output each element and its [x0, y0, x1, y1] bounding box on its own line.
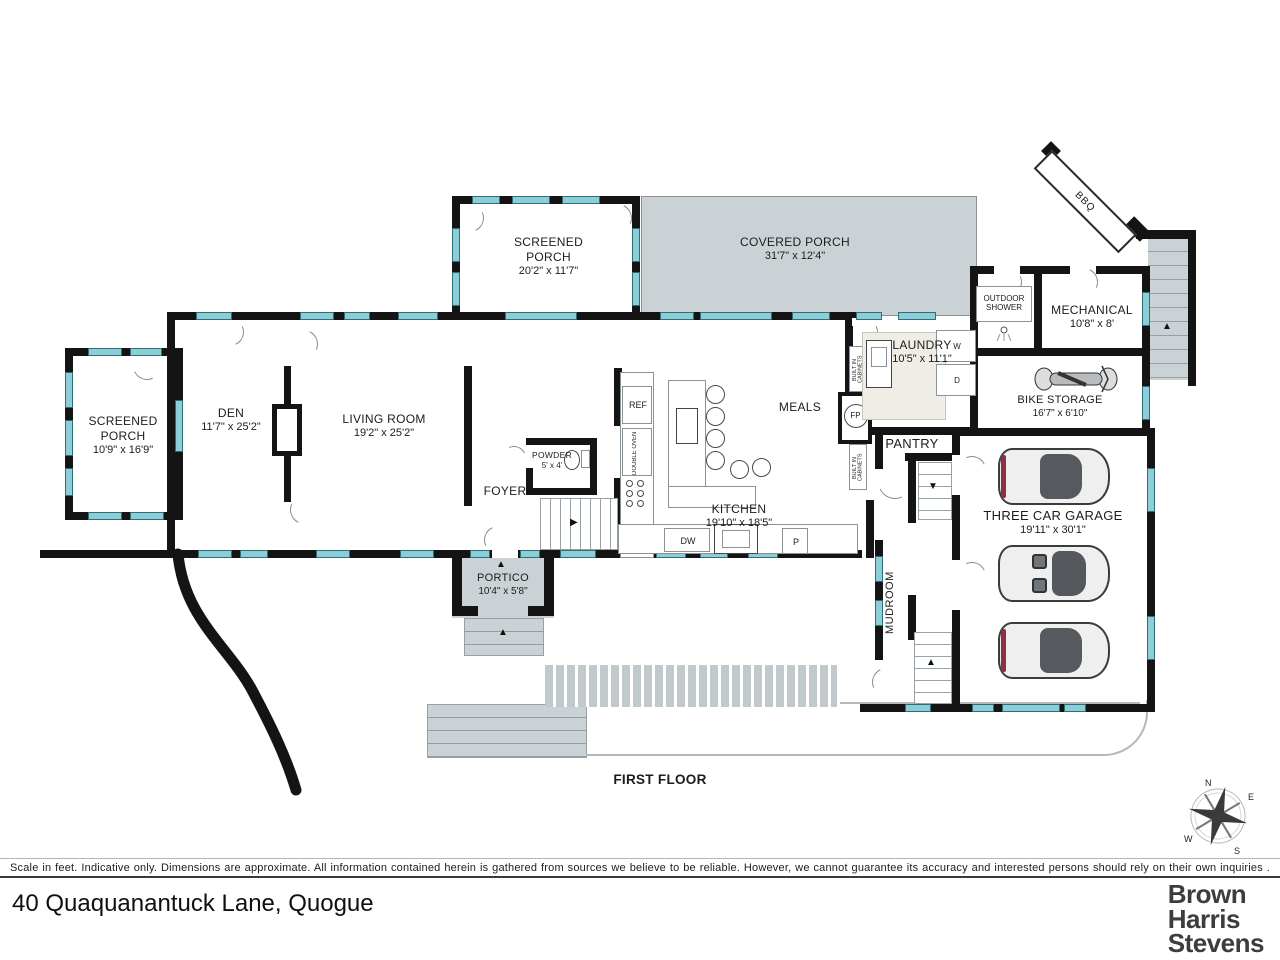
wall [167, 312, 175, 558]
window [905, 704, 931, 712]
stairs-down-arrow: ▼ [928, 482, 938, 492]
brand-line: Brown [1168, 882, 1264, 907]
room-dims: 10'8" x 8' [1036, 318, 1148, 332]
car-seat [1032, 578, 1047, 593]
double-oven-label: DOUBLE OVEN [632, 431, 638, 475]
mudroom-stairs [914, 632, 952, 704]
window [1147, 616, 1155, 660]
room-name: POWDER [528, 450, 576, 461]
toilet-tank [581, 450, 590, 468]
floor-plan: REF DOUBLE OVEN DW P FP BUILT IN CABINET… [0, 0, 1280, 960]
wall [1188, 230, 1196, 386]
front-steps [427, 704, 587, 758]
door-arc [600, 200, 636, 236]
room-name: SCREENED PORCH [496, 235, 601, 265]
compass-e: E [1248, 792, 1254, 802]
room-name: KITCHEN [678, 502, 800, 517]
wall [590, 438, 597, 495]
door-arc [286, 326, 322, 362]
room-name: MECHANICAL [1036, 303, 1148, 318]
stool [752, 458, 771, 477]
rear-staircase [1148, 238, 1190, 380]
room-label-meals: MEALS [762, 400, 838, 415]
bbq-label: BBQ [1073, 189, 1098, 214]
sink-basin [722, 530, 750, 548]
outdoor-shower-sign: OUTDOOR SHOWER [976, 286, 1032, 322]
room-label-garage: THREE CAR GARAGE 19'11" x 30'1" [978, 508, 1128, 538]
window [1142, 386, 1150, 420]
room-label-den: DEN 11'7" x 25'2" [186, 406, 276, 435]
window [1002, 704, 1060, 712]
wall [952, 428, 1155, 436]
burner [637, 500, 644, 507]
refrigerator: REF [622, 386, 652, 424]
stool [730, 460, 749, 479]
stool [706, 429, 725, 448]
window [660, 312, 694, 320]
shower-head-icon [994, 326, 1014, 344]
convertible-car [998, 545, 1110, 602]
dw-label: DW [667, 537, 709, 546]
wall [175, 452, 183, 520]
room-label-powder: POWDER 5' x 4' [528, 450, 576, 471]
wall [65, 512, 183, 520]
car-taillight [1001, 629, 1006, 672]
door-arc [499, 443, 530, 474]
window [316, 550, 350, 558]
window [65, 468, 73, 496]
curved-garden-wall [150, 548, 320, 798]
window [562, 196, 600, 204]
window [520, 550, 540, 558]
window [240, 550, 268, 558]
wall [526, 438, 596, 445]
stairs-right-arrow: ▶ [570, 518, 578, 528]
compass-s: S [1234, 846, 1240, 856]
wall [65, 348, 183, 356]
window [875, 556, 883, 582]
room-dims: 20'2" x 11'7" [496, 265, 601, 279]
burner [626, 500, 633, 507]
room-label-laundry: LAUNDRY 10'5" x 11'1" [872, 338, 972, 367]
room-label-living-room: LIVING ROOM 19'2" x 25'2" [324, 412, 444, 441]
room-dims: 10'5" x 11'1" [872, 353, 972, 367]
window [470, 550, 490, 558]
room-label-pantry: PANTRY [874, 436, 950, 452]
room-name: COVERED PORCH [736, 235, 854, 250]
burner [626, 480, 633, 487]
wall [452, 606, 478, 616]
room-name: FOYER [470, 484, 540, 499]
window [300, 312, 334, 320]
window [792, 312, 830, 320]
room-dims: 10'4" x 5'8" [458, 586, 548, 599]
stool [706, 385, 725, 404]
room-label-foyer: FOYER [470, 484, 540, 499]
room-dims: 5' x 4' [528, 461, 576, 471]
window [472, 196, 500, 204]
room-label-bike-storage: BIKE STORAGE 16'7" x 6'10" [990, 394, 1130, 420]
door-arc [286, 492, 322, 528]
room-label-mudroom: MUDROOM [884, 550, 898, 655]
foyer-stairs [540, 498, 618, 550]
motorcycle-icon [1028, 360, 1124, 398]
outdoor-shower-label: OUTDOOR SHOWER [977, 295, 1031, 313]
car-roof [1040, 628, 1082, 673]
island-sink [676, 408, 698, 444]
room-dims: 11'7" x 25'2" [186, 421, 276, 435]
ref-label: REF [625, 401, 651, 410]
room-name: THREE CAR GARAGE [978, 508, 1128, 524]
car [998, 448, 1110, 505]
sliding-door [700, 312, 772, 320]
car-roof [1052, 551, 1086, 596]
car-taillight [1001, 455, 1006, 498]
window [632, 228, 640, 262]
burner [637, 480, 644, 487]
wall [866, 500, 874, 558]
window [512, 196, 550, 204]
room-dims: 19'10" x 18'5" [678, 517, 800, 531]
window [972, 704, 994, 712]
window [1147, 468, 1155, 512]
compass-n: N [1205, 778, 1212, 788]
room-name: BIKE STORAGE [990, 394, 1130, 408]
fireplace [272, 404, 302, 456]
compass-w: W [1184, 834, 1193, 844]
room-name: LAUNDRY [872, 338, 972, 353]
window [65, 420, 73, 456]
p-label: P [785, 538, 807, 547]
property-address: 40 Quaquanantuck Lane, Quogue [12, 890, 374, 918]
wall [528, 606, 554, 616]
room-label-screened-porch-west: SCREENED PORCH 10'9" x 16'9" [78, 414, 168, 458]
wall [284, 366, 291, 408]
room-name: LIVING ROOM [324, 412, 444, 427]
wall [284, 454, 291, 502]
double-oven: DOUBLE OVEN [622, 428, 652, 476]
window [65, 372, 73, 408]
door-arc [868, 664, 904, 700]
window [898, 312, 936, 320]
window [452, 272, 460, 306]
window [560, 550, 596, 558]
room-label-mechanical: MECHANICAL 10'8" x 8' [1036, 303, 1148, 332]
dishwasher: DW [664, 528, 710, 552]
window [175, 400, 183, 452]
built-in-cabinets-label: BUILT IN CABINETS [853, 446, 864, 489]
window [400, 550, 434, 558]
room-name: PORTICO [458, 572, 548, 586]
car [998, 622, 1110, 679]
window [344, 312, 370, 320]
car-roof [1040, 454, 1082, 499]
room-dims: 16'7" x 6'10" [990, 408, 1130, 421]
window [130, 512, 164, 520]
window [632, 272, 640, 306]
window [1064, 704, 1086, 712]
room-dims: 19'2" x 25'2" [324, 427, 444, 441]
bbq-counter: BBQ [1034, 150, 1137, 253]
window [452, 228, 460, 262]
burner [626, 490, 633, 497]
window [875, 600, 883, 626]
built-in-cabinet: BUILT IN CABINETS [849, 444, 867, 490]
wall [970, 348, 1150, 356]
room-name: DEN [186, 406, 276, 421]
room-name: MEALS [762, 400, 838, 415]
room-name: SCREENED PORCH [78, 414, 168, 444]
brokerage-logo: Brown Harris Stevens [1168, 882, 1264, 956]
stairs-up-arrow: ▲ [926, 658, 936, 668]
car-seat [1032, 554, 1047, 569]
room-name: PANTRY [874, 436, 950, 452]
room-label-screened-porch-north: SCREENED PORCH 20'2" x 11'7" [496, 235, 601, 279]
room-label-kitchen: KITCHEN 19'10" x 18'5" [678, 502, 800, 531]
portico-steps-arrow: ▲ [498, 628, 508, 638]
wall [175, 348, 183, 400]
sliding-door [505, 312, 577, 320]
stool [706, 407, 725, 426]
stool [706, 451, 725, 470]
room-label-portico: PORTICO 10'4" x 5'8" [458, 572, 548, 598]
room-dims: 10'9" x 16'9" [78, 444, 168, 458]
rear-stairs-up-arrow: ▲ [1162, 322, 1172, 332]
entry-arrow: ▲ [496, 560, 506, 570]
window [88, 512, 122, 520]
brand-line: Stevens [1168, 931, 1264, 956]
compass-rose: N E S W [1176, 774, 1260, 858]
garage-door-gap [952, 560, 960, 610]
disclaimer-bar: Scale in feet. Indicative only. Dimensio… [0, 858, 1280, 878]
dryer-label: D [939, 377, 975, 385]
floor-title: FIRST FLOOR [580, 772, 740, 789]
room-label-covered-porch: COVERED PORCH 31'7" x 12'4" [736, 235, 854, 264]
burner [637, 490, 644, 497]
window [198, 550, 232, 558]
window [88, 348, 122, 356]
room-dims: 31'7" x 12'4" [736, 250, 854, 264]
room-dims: 19'11" x 30'1" [978, 524, 1128, 538]
pantry-cabinet: P [782, 528, 808, 554]
window [398, 312, 438, 320]
dryer: D [936, 364, 976, 396]
